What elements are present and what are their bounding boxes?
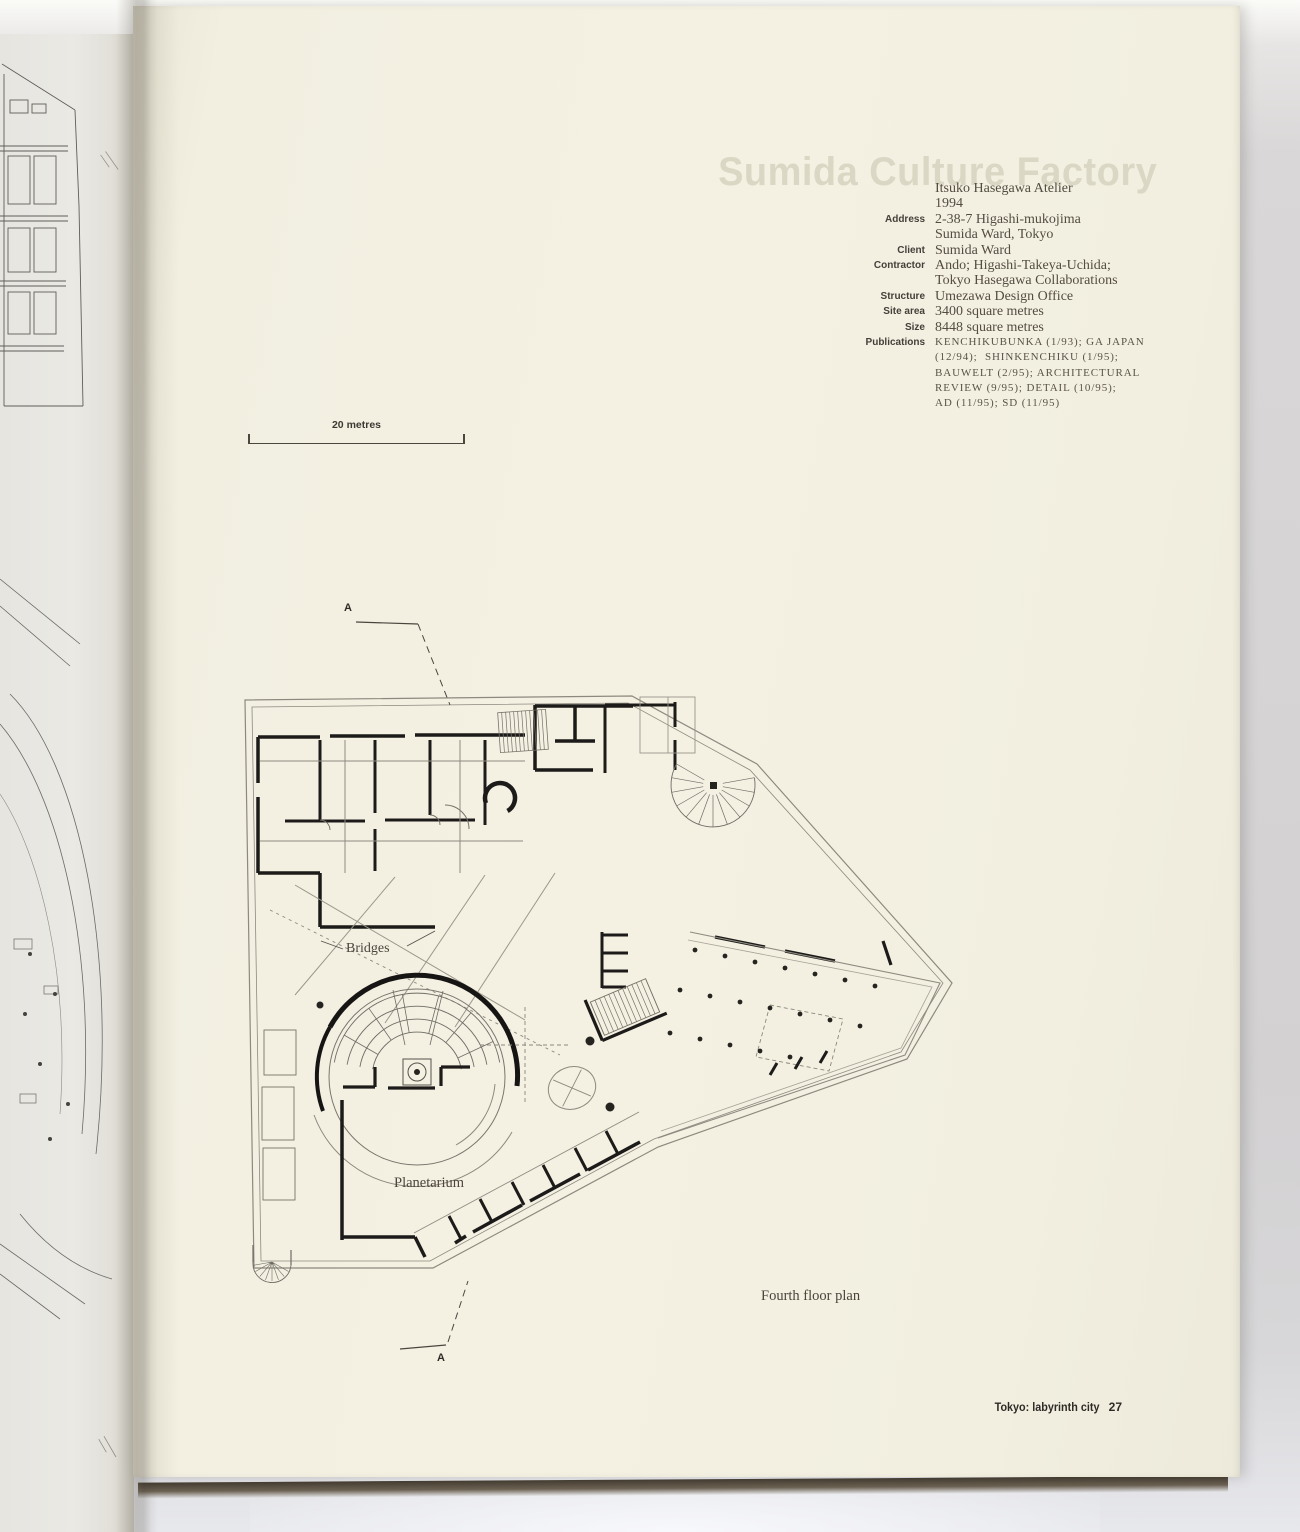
detail-value: AD (11/95); SD (11/95): [935, 396, 1060, 411]
detail-value: REVIEW (9/95); DETAIL (10/95);: [935, 381, 1117, 396]
detail-row: Address2-38-7 Higashi-mukojima: [755, 212, 1145, 227]
floor-plan-drawing: [225, 575, 970, 1385]
detail-label: Contractor: [755, 258, 935, 273]
spine-shadow: [116, 0, 158, 1532]
detail-label: Address: [755, 212, 935, 227]
scale-bar-line: [248, 434, 465, 444]
detail-label: [755, 350, 935, 365]
detail-value: Itsuko Hasegawa Atelier: [935, 181, 1073, 196]
detail-label: [755, 196, 935, 211]
detail-value: Ando; Higashi-Takeya-Uchida;: [935, 258, 1111, 273]
detail-value: 1994: [935, 196, 963, 211]
detail-value: KENCHIKUBUNKA (1/93); GA JAPAN: [935, 335, 1145, 350]
scale-bar-label: 20 metres: [248, 419, 465, 431]
spiral-stair: [671, 764, 755, 827]
section-mark-bottom: A: [437, 1352, 445, 1364]
detail-row: PublicationsKENCHIKUBUNKA (1/93); GA JAP…: [755, 335, 1145, 350]
detail-value: Umezawa Design Office: [935, 289, 1073, 304]
planetarium-drawing: [314, 975, 518, 1186]
detail-label: [755, 181, 935, 196]
book-photo: Sumida Culture Factory Itsuko Hasegawa A…: [0, 0, 1300, 1532]
section-mark-top: A: [344, 602, 352, 614]
detail-label: [755, 227, 935, 242]
stair-top: [498, 709, 549, 752]
detail-label: Size: [755, 320, 935, 335]
detail-label: Publications: [755, 335, 935, 350]
bridges-lines: [270, 873, 560, 1055]
detail-label: [755, 381, 935, 396]
main-stair: [585, 973, 667, 1041]
project-details: Itsuko Hasegawa Atelier 1994 Address2-38…: [755, 181, 1145, 412]
detail-row: StructureUmezawa Design Office: [755, 289, 1145, 304]
detail-value: Sumida Ward, Tokyo: [935, 227, 1053, 242]
detail-row: 1994: [755, 196, 1145, 211]
planet-block: [262, 1030, 425, 1257]
detail-row: Sumida Ward, Tokyo: [755, 227, 1145, 242]
detail-label: Client: [755, 243, 935, 258]
detail-value: Tokyo Hasegawa Collaborations: [935, 273, 1118, 288]
hall: [480, 932, 940, 1138]
page-footer: Tokyo: labyrinth city27: [950, 1398, 1122, 1416]
detail-row: Site area3400 square metres: [755, 304, 1145, 319]
detail-row: Itsuko Hasegawa Atelier: [755, 181, 1145, 196]
detail-value: 2-38-7 Higashi-mukojima: [935, 212, 1081, 227]
plan-caption: Fourth floor plan: [761, 1288, 860, 1305]
detail-row: ContractorAndo; Higashi-Takeya-Uchida;: [755, 258, 1145, 273]
detail-row: (12/94); SHINKENCHIKU (1/95);: [755, 350, 1145, 365]
bridges-label: Bridges: [346, 941, 390, 957]
detail-row: Size8448 square metres: [755, 320, 1145, 335]
scale-bar: 20 metres: [248, 419, 465, 444]
detail-label: [755, 396, 935, 411]
detail-label: [755, 366, 935, 381]
detail-row: Tokyo Hasegawa Collaborations: [755, 273, 1145, 288]
circle-x: [542, 1060, 601, 1116]
detail-row: BAUWELT (2/95); ARCHITECTURAL: [755, 366, 1145, 381]
detail-value: Sumida Ward: [935, 243, 1011, 258]
corner-stair: [253, 1245, 291, 1283]
left-page-drawing: [0, 34, 135, 1532]
detail-value: BAUWELT (2/95); ARCHITECTURAL: [935, 366, 1140, 381]
detail-label: Site area: [755, 304, 935, 319]
detail-value: 8448 square metres: [935, 320, 1044, 335]
running-head: Tokyo: labyrinth city: [995, 1400, 1100, 1414]
left-page: [0, 34, 134, 1532]
detail-value: 3400 square metres: [935, 304, 1044, 319]
detail-row: REVIEW (9/95); DETAIL (10/95);: [755, 381, 1145, 396]
detail-row: AD (11/95); SD (11/95): [755, 396, 1145, 411]
detail-label: Structure: [755, 289, 935, 304]
upper-rooms-thin: [260, 697, 695, 873]
page-number: 27: [1109, 1400, 1122, 1414]
planetarium-label: Planetarium: [394, 1175, 464, 1192]
detail-row: ClientSumida Ward: [755, 243, 1145, 258]
detail-label: [755, 273, 935, 288]
detail-value: (12/94); SHINKENCHIKU (1/95);: [935, 350, 1119, 365]
